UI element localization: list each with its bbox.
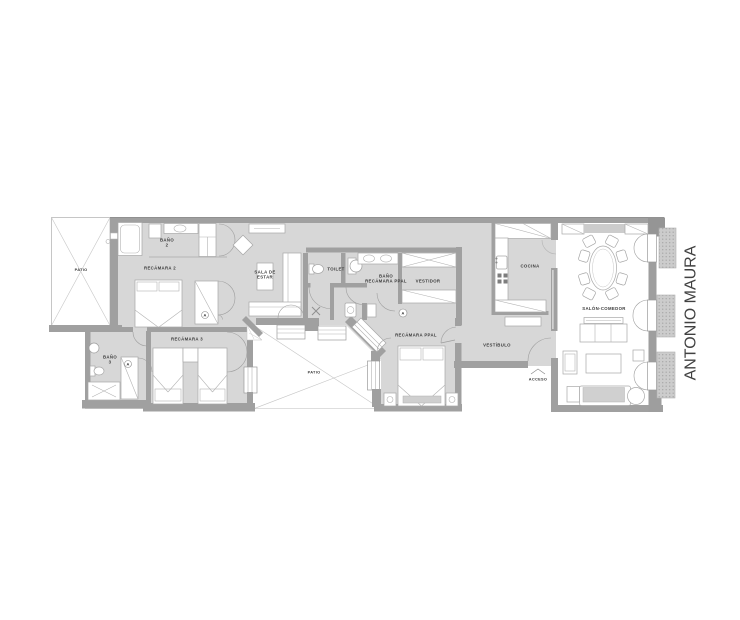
svg-text:ANTONIO MAURA: ANTONIO MAURA xyxy=(683,245,700,380)
svg-text:COCINA: COCINA xyxy=(520,264,539,269)
svg-text:2: 2 xyxy=(166,243,169,248)
svg-text:A: A xyxy=(126,362,129,367)
svg-text:ESTAR: ESTAR xyxy=(257,275,274,280)
svg-text:SALÓN-COMEDOR: SALÓN-COMEDOR xyxy=(582,306,626,311)
svg-text:PATIO: PATIO xyxy=(308,370,321,375)
svg-text:VESTIDOR: VESTIDOR xyxy=(416,279,441,284)
svg-text:ACCESO: ACCESO xyxy=(529,377,547,382)
svg-text:RECÁMARA 3: RECÁMARA 3 xyxy=(171,337,203,342)
svg-text:3: 3 xyxy=(109,360,112,365)
svg-text:TOILET: TOILET xyxy=(327,267,344,272)
svg-text:A: A xyxy=(401,311,404,316)
svg-text:VESTÍBULO: VESTÍBULO xyxy=(483,343,511,348)
svg-text:RECÁMARA PPAL: RECÁMARA PPAL xyxy=(365,279,407,284)
svg-text:RECÁMARA PPAL: RECÁMARA PPAL xyxy=(395,333,437,338)
svg-text:PATIO: PATIO xyxy=(75,267,88,272)
svg-text:A: A xyxy=(203,313,206,318)
svg-text:RECÁMARA 2: RECÁMARA 2 xyxy=(144,266,176,271)
